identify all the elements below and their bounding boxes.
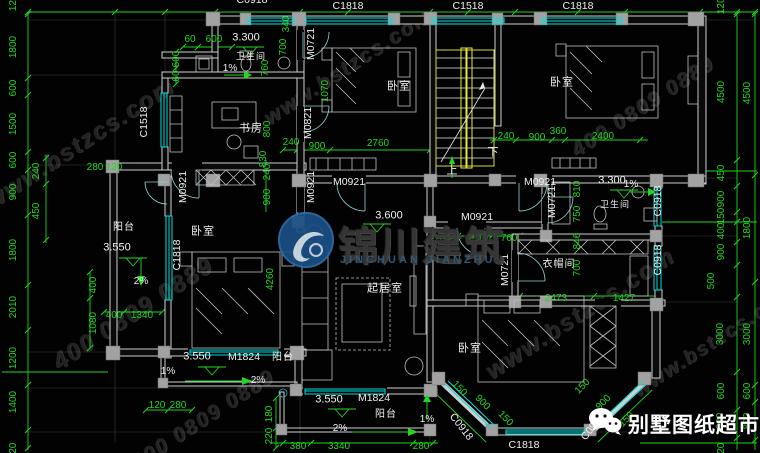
wechat-icon bbox=[588, 406, 622, 441]
window-right-closet bbox=[654, 246, 661, 290]
staircase bbox=[436, 48, 494, 178]
window-bay-left bbox=[445, 381, 494, 428]
floorplan-canvas: www.bstzcs.com 400 0809 0889 www.bstzcs.… bbox=[0, 0, 760, 453]
watermark-logo-icon bbox=[278, 212, 334, 268]
watermark-logo-en: JINCHUAN JIANZHU bbox=[340, 254, 496, 266]
brand-name: 别墅图纸超市 bbox=[628, 409, 760, 439]
brand-badge: 别墅图纸超市 bbox=[588, 406, 760, 441]
window-left-balcony bbox=[166, 216, 172, 300]
window-left-study bbox=[161, 93, 167, 147]
window-right-bath bbox=[654, 188, 661, 226]
center-watermark: 锦川建筑 JINCHUAN JIANZHU bbox=[278, 212, 538, 272]
